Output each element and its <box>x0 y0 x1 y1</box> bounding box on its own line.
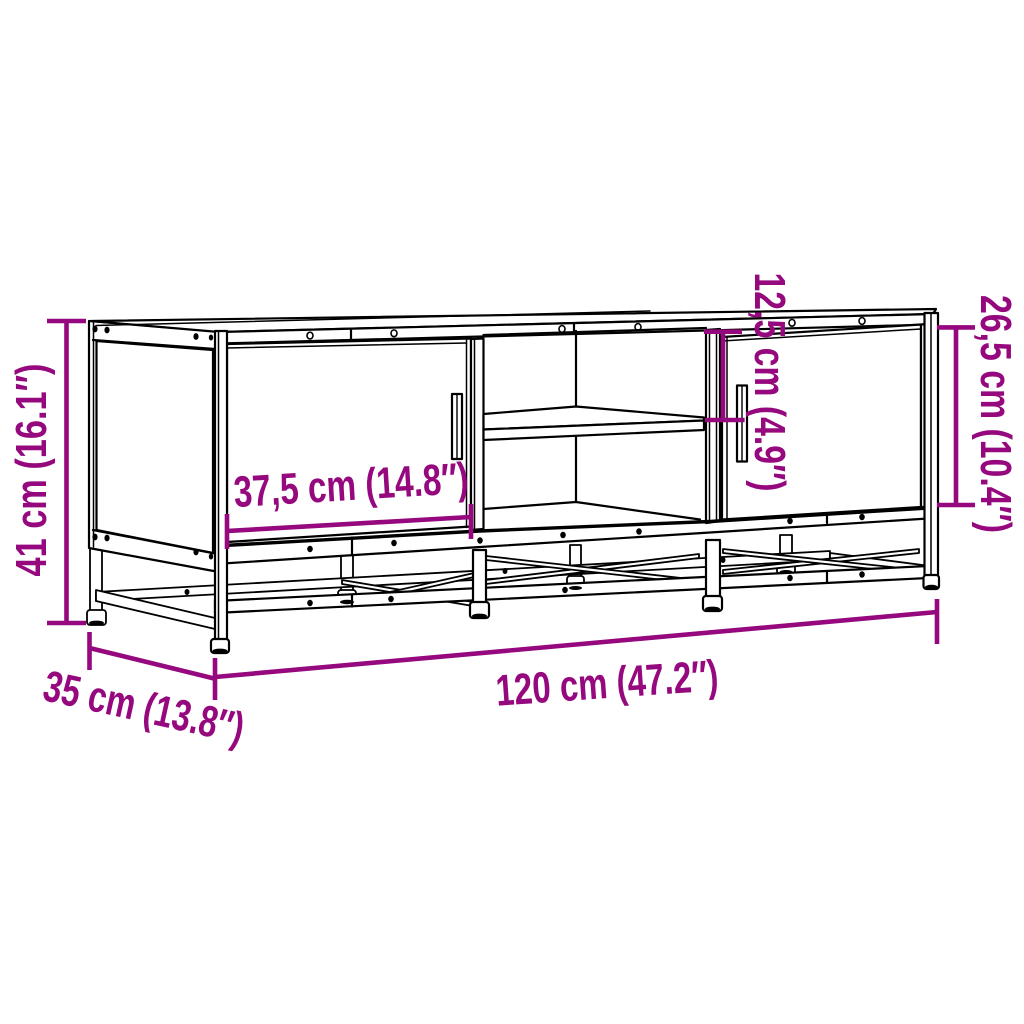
svg-text:26,5 cm (10.4″): 26,5 cm (10.4″) <box>971 295 1020 533</box>
svg-text:41 cm (16.1″): 41 cm (16.1″) <box>7 364 56 577</box>
svg-text:12,5 cm (4.9″): 12,5 cm (4.9″) <box>745 273 794 492</box>
